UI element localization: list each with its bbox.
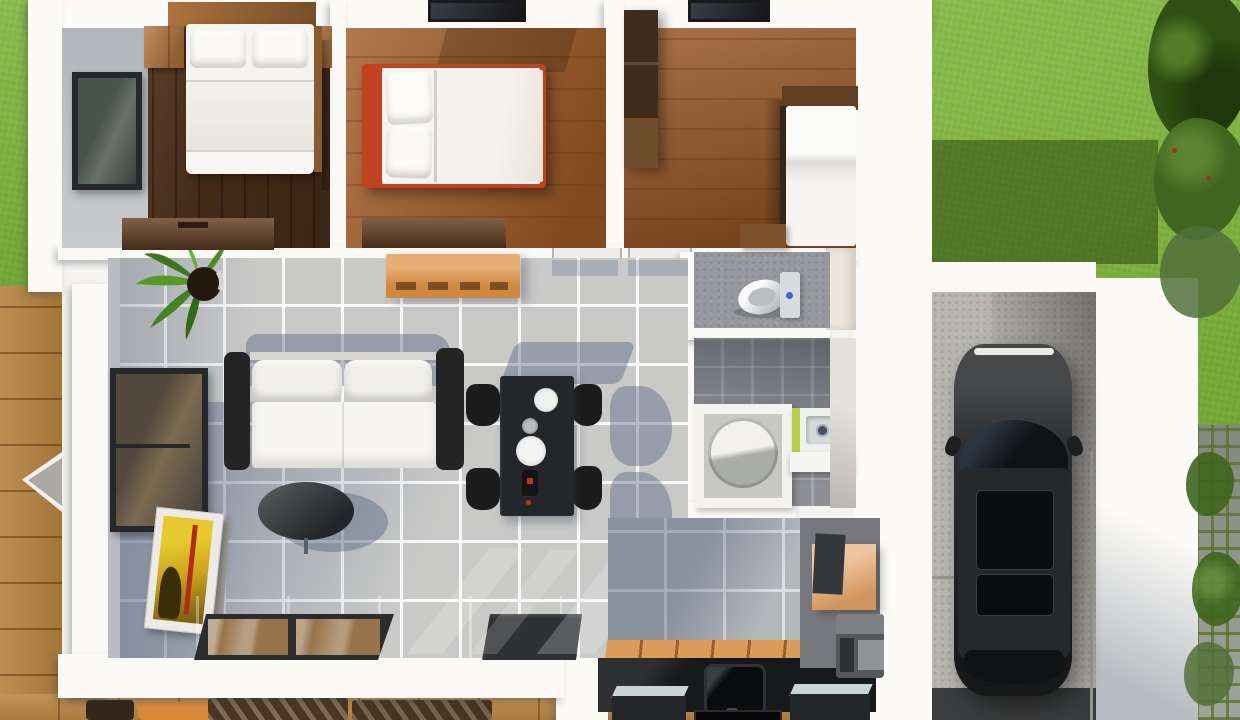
bedroom3-stool	[740, 224, 786, 248]
washing-machine	[836, 614, 884, 678]
bed1-floor-shadow	[322, 40, 332, 190]
bed1-duvet-fold	[186, 150, 314, 174]
wc-room	[694, 250, 830, 328]
plate-large	[534, 388, 558, 412]
sofa-back-cushion-right	[344, 360, 432, 402]
appliance-left	[612, 696, 686, 720]
car-rear-window	[964, 650, 1064, 684]
deck-chair-orange	[138, 702, 216, 720]
sink-green-side	[792, 408, 800, 454]
door-glass-pane-left	[208, 619, 288, 655]
plant-pot	[187, 267, 221, 301]
garage-wall-north	[932, 262, 1096, 292]
car-windshield-trim	[974, 348, 1054, 355]
bedroom-2	[346, 0, 606, 250]
kitchen-floor-shadow	[608, 518, 820, 648]
bed3-mattress-white	[786, 106, 856, 246]
shower-round-tray	[708, 418, 778, 488]
door-glass-pane-right	[296, 619, 380, 655]
wall-garage-east	[1094, 278, 1198, 720]
lounger-striped-2	[352, 700, 492, 720]
hall-door-shadow-1	[552, 260, 618, 276]
bedroom-1	[60, 0, 332, 250]
console-slot-3	[460, 282, 480, 290]
bed1-pillow-right	[252, 30, 308, 68]
wall-wc-east-beige	[826, 248, 856, 330]
sofa-seat	[252, 402, 436, 468]
sofa-seat-seam	[342, 402, 344, 468]
bed2-duvet	[434, 70, 543, 182]
wall-west-bedroom	[28, 0, 62, 292]
sofa-armrest-right	[436, 348, 464, 470]
garage	[932, 262, 1096, 720]
floor-plan-render	[0, 0, 1240, 720]
bathroom	[694, 338, 856, 508]
car	[952, 340, 1076, 702]
bowl-small	[522, 418, 538, 434]
path-plant-2	[1192, 552, 1240, 626]
toilet-cistern	[780, 272, 800, 318]
nightstand-left	[144, 26, 184, 68]
sink-faucet	[818, 426, 827, 435]
deck-west	[0, 286, 62, 720]
plate-large-2	[516, 436, 546, 466]
bed2-pillow-bottom	[385, 125, 433, 179]
wall-west-living	[72, 284, 110, 698]
sofa-armrest-left	[224, 352, 250, 470]
wardrobe-open-section	[624, 118, 658, 168]
bed1-duvet	[186, 80, 314, 154]
dining-chair-top-left	[466, 384, 500, 426]
wall-bed1-bed2	[330, 0, 346, 250]
bedroom2-dresser	[362, 218, 506, 248]
bed1-side-rail	[314, 26, 322, 172]
hall-door-shadow-2	[628, 260, 688, 276]
dining-chair-bottom-right	[572, 466, 602, 510]
window-mullion	[116, 444, 190, 448]
dresser-item	[178, 222, 208, 228]
dining-chair-bottom-left	[466, 468, 500, 510]
shower-enclosure	[694, 404, 792, 508]
sofa-back-cushion-left	[252, 360, 342, 402]
dining-chair-top-right	[572, 384, 602, 426]
sofa-back-rail	[250, 352, 436, 360]
cooktop	[694, 710, 782, 720]
tree-shadow-on-lawn	[930, 140, 1158, 264]
car-sunroof-rear	[976, 574, 1054, 616]
bedroom1-dresser	[122, 218, 274, 250]
bottle	[522, 470, 538, 496]
toilet-seat-inner	[746, 285, 777, 308]
wall-bed2-bed3	[604, 0, 624, 250]
car-sunroof-front	[976, 490, 1054, 570]
wardrobe	[624, 10, 658, 168]
bath-wall-face-east	[830, 338, 856, 508]
coffee-table-leg	[304, 538, 308, 554]
bedroom2-skylight	[428, 0, 526, 22]
sofa	[224, 348, 464, 474]
berry-1	[1172, 148, 1177, 153]
console-slot-1	[396, 282, 416, 290]
bottle-red-label	[527, 478, 533, 484]
console-sideboard	[386, 254, 520, 298]
wardrobe-shelf-line-1	[624, 62, 658, 65]
dining-table	[500, 376, 574, 516]
washing-machine-door	[840, 638, 854, 672]
console-slot-4	[490, 282, 508, 290]
sliding-glass-door	[194, 614, 394, 660]
bedroom-3	[624, 0, 856, 250]
berry-2	[1206, 176, 1211, 181]
garage-rail-vertical	[1090, 452, 1093, 720]
chair-shadow-1	[610, 386, 672, 466]
red-dot	[526, 500, 531, 505]
laundry-cabinet-dark-panel	[812, 533, 845, 594]
laundry-nook	[800, 518, 896, 720]
bedroom3-skylight	[688, 0, 770, 22]
toilet-flush-button	[786, 292, 793, 299]
washing-machine-cube	[858, 640, 884, 670]
shrub-east-1	[1154, 118, 1240, 240]
console-slot-2	[428, 282, 448, 290]
bed2-pillow-top	[385, 71, 434, 125]
outdoor-table	[86, 700, 134, 720]
bedroom1-window	[72, 72, 142, 190]
coffee-table	[258, 482, 354, 540]
bed1-pillow-left	[190, 30, 246, 68]
washing-machine-top	[836, 614, 884, 634]
lounger-striped-1	[208, 698, 348, 720]
lawn-top-left	[0, 0, 30, 288]
